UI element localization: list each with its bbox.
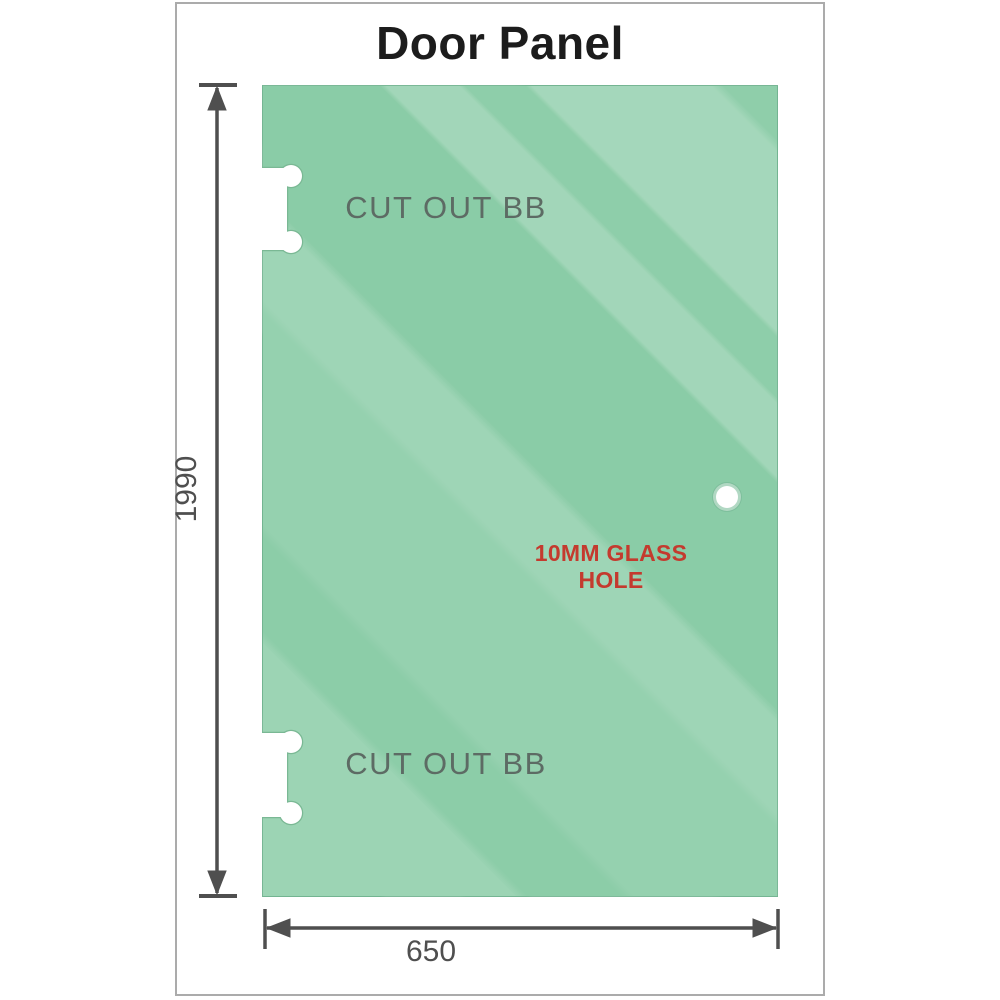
diagram-title: Door Panel bbox=[175, 16, 825, 70]
arrow-down-icon bbox=[208, 871, 226, 894]
glass-hole-icon bbox=[716, 486, 738, 508]
arrow-up-icon bbox=[208, 87, 226, 110]
hinge-cutout-top-icon bbox=[262, 160, 310, 266]
arrow-right-icon bbox=[753, 919, 776, 937]
width-dimension-line bbox=[258, 903, 786, 955]
arrow-left-icon bbox=[267, 919, 290, 937]
height-dimension-value: 1990 bbox=[171, 449, 203, 529]
hinge-cutout-bottom-icon bbox=[262, 725, 310, 831]
cutout-top-label: CUT OUT BB bbox=[341, 190, 551, 226]
glass-hole-label: 10MM GLASS HOLE bbox=[511, 540, 711, 594]
cutout-bottom-label: CUT OUT BB bbox=[341, 746, 551, 782]
width-dimension-value: 650 bbox=[391, 936, 471, 968]
door-panel-diagram: Door Panel CUT OUT BB CUT OUT BB bbox=[0, 0, 1000, 1000]
